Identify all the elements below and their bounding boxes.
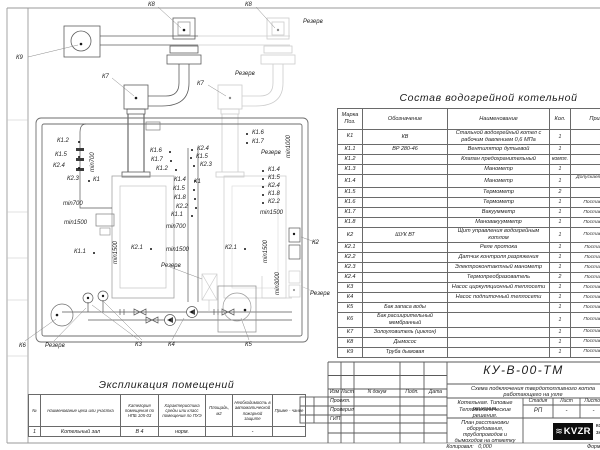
drawing-label: К1.6 bbox=[252, 130, 264, 136]
drawing-label: К3 bbox=[135, 342, 142, 348]
drawing-label: Резерв bbox=[235, 71, 255, 77]
table-cell bbox=[363, 293, 448, 303]
table-cell: Постав. по соглас. bbox=[571, 218, 600, 228]
plan-boilers bbox=[112, 176, 286, 298]
format-label: Формат bbox=[587, 445, 600, 450]
table-cell: Постав. с ШУК ВТ bbox=[571, 243, 600, 253]
table-cell: 1 bbox=[550, 303, 571, 313]
table-cell bbox=[363, 208, 448, 218]
table-cell: Манометр bbox=[448, 174, 550, 187]
table-cell bbox=[448, 327, 550, 337]
table-cell: Постав. по соглас. bbox=[571, 208, 600, 218]
drawing-label: К1.5 bbox=[268, 175, 280, 181]
drawing-label: Резерв bbox=[161, 263, 181, 269]
table-cell bbox=[571, 188, 600, 198]
table-cell bbox=[571, 130, 600, 145]
table-row: К6Бак расширительный мембранный1Постав. … bbox=[338, 313, 600, 328]
table-cell: Электроконтактный манометр bbox=[448, 263, 550, 273]
drawing-label: К1 bbox=[194, 179, 201, 185]
table-cell: Постав. по соглас. bbox=[571, 327, 600, 337]
sheet-subtitle: Схема подключения твердотопливного котла… bbox=[452, 386, 600, 399]
drawing-label: К2.4 bbox=[197, 146, 209, 152]
table-cell: К7 bbox=[338, 327, 363, 337]
table-cell: Постав. по соглас. bbox=[571, 198, 600, 208]
sig-row-checked: Проверил bbox=[330, 408, 390, 414]
table-cell bbox=[273, 427, 306, 437]
table-cell bbox=[363, 164, 448, 174]
table-cell: Постав. по соглас. bbox=[571, 303, 600, 313]
table-cell: Клапан предохранительный bbox=[448, 154, 550, 164]
company-name-line-1: КОТЕЛЬНЫЙ bbox=[596, 424, 600, 428]
table-cell: К1.6 bbox=[338, 198, 363, 208]
table-cell: 1 bbox=[550, 218, 571, 228]
table-cell: К2 bbox=[338, 228, 363, 243]
drawing-label: К7 bbox=[102, 74, 109, 80]
table-cell: К1 bbox=[338, 130, 363, 145]
table-row: 1Котельный залВ 4норм.- bbox=[29, 427, 306, 437]
table-cell: ВР 280-46 bbox=[363, 144, 448, 154]
drawing-label: min1500 bbox=[113, 241, 119, 264]
table-cell: К1.1 bbox=[338, 144, 363, 154]
table-cell: 1 bbox=[550, 228, 571, 243]
drawing-label: Резерв bbox=[303, 19, 323, 25]
table-cell: Допускается замена поз. К2.3 bbox=[571, 174, 600, 187]
rooms-table-title: Экспликация помещений bbox=[28, 379, 305, 391]
table-cell bbox=[363, 198, 448, 208]
sig-header-list: Лист bbox=[341, 390, 354, 396]
table-cell: 1 bbox=[550, 243, 571, 253]
drawing-label: К5 bbox=[245, 342, 252, 348]
col-header: Характеристика среды или класс помещения… bbox=[159, 395, 206, 427]
table-cell bbox=[363, 243, 448, 253]
table-cell bbox=[206, 427, 233, 437]
table-cell: Бак расширительный мембранный bbox=[363, 313, 448, 328]
table-cell: Стальной водогрейный котел с рабочим дав… bbox=[448, 130, 550, 145]
sheets-label: Листов bbox=[580, 399, 600, 405]
table-cell: К1.2 bbox=[338, 154, 363, 164]
table-cell: Датчик контроля разряжения bbox=[448, 253, 550, 263]
table-cell bbox=[363, 188, 448, 198]
table-cell: К4 bbox=[338, 293, 363, 303]
table-cell: К1.4 bbox=[338, 174, 363, 187]
col-header: Наименование bbox=[448, 109, 550, 130]
table-row: К1.3Манометр1 bbox=[338, 164, 600, 174]
drawing-label: min1500 bbox=[166, 247, 189, 253]
table-cell bbox=[448, 347, 550, 357]
drawing-label: К1.1 bbox=[171, 212, 183, 218]
table-cell: ШУК ВТ bbox=[363, 228, 448, 243]
drawing-label: Резерв bbox=[261, 150, 281, 156]
table-cell: К8 bbox=[338, 337, 363, 347]
table-cell: 1 bbox=[550, 130, 571, 145]
table-cell: Манометр bbox=[448, 164, 550, 174]
table-cell: К5 bbox=[338, 303, 363, 313]
table-cell: Постав. по соглас. bbox=[571, 283, 600, 293]
drawing-label: К2.1 bbox=[225, 245, 237, 251]
elevation-view bbox=[64, 18, 201, 177]
table-cell: 1 bbox=[550, 293, 571, 303]
col-header: Необходимость в автоматической пожарной … bbox=[233, 395, 273, 427]
drawing-label: К1.5 bbox=[173, 186, 185, 192]
table-cell: 1 bbox=[550, 263, 571, 273]
table-cell: Щит управления водогрейным котлом bbox=[448, 228, 550, 243]
drawing-label: К2.3 bbox=[67, 176, 79, 182]
copied-label: Копировал: bbox=[425, 445, 495, 450]
table-cell: КВ bbox=[363, 130, 448, 145]
table-cell: Термопреобразователь bbox=[448, 273, 550, 283]
col-header: Примечание bbox=[571, 109, 600, 130]
table-row: К2.2Датчик контроля разряжения1Постав. с… bbox=[338, 253, 600, 263]
kvzr-logo: ≋ KVZR bbox=[553, 423, 593, 441]
table-cell: Мановакуумметр bbox=[448, 218, 550, 228]
drawing-label: К6 bbox=[19, 343, 26, 349]
table-cell: 1 bbox=[550, 327, 571, 337]
drawing-label: К1.8 bbox=[268, 191, 280, 197]
table-cell bbox=[363, 283, 448, 293]
table-row: К1КВСтальной водогрейный котел с рабочим… bbox=[338, 130, 600, 145]
sig-header-izm: Изм bbox=[328, 390, 341, 396]
drawing-label: К1.7 bbox=[151, 157, 163, 163]
drawing-label: К1.5 bbox=[55, 152, 67, 158]
drawing-label: К1.7 bbox=[252, 139, 264, 145]
col-header: № bbox=[29, 395, 41, 427]
drawing-label: min700 bbox=[90, 152, 96, 172]
drawing-label: К4 bbox=[168, 342, 175, 348]
table-row: К1.5Термометр2 bbox=[338, 188, 600, 198]
drawing-label: Резерв bbox=[310, 291, 330, 297]
drawing-label: К2.2 bbox=[268, 199, 280, 205]
col-header: Приме - чание bbox=[273, 395, 306, 427]
table-cell: Постав. по соглас. bbox=[571, 347, 600, 357]
table-cell: Насос циркуляционный теплосети bbox=[448, 283, 550, 293]
table-cell bbox=[363, 218, 448, 228]
col-header: Наименование цеха или участка bbox=[41, 395, 121, 427]
table-cell bbox=[448, 337, 550, 347]
table-row: К3Насос циркуляционный теплосети1Постав.… bbox=[338, 283, 600, 293]
sheets-value: - bbox=[580, 408, 600, 415]
components-header-row: Марка Поз. Обозначение Наименование Кол.… bbox=[338, 109, 600, 130]
drawing-label: К1 bbox=[93, 177, 100, 183]
components-table: Состав водогрейной котельной Марка Поз. … bbox=[337, 92, 600, 358]
table-cell: К1.5 bbox=[338, 188, 363, 198]
table-cell bbox=[363, 253, 448, 263]
rooms-table: Экспликация помещений № Наименование цех… bbox=[28, 379, 305, 437]
table-cell: 1 bbox=[550, 208, 571, 218]
sig-header-podp: Подп. bbox=[400, 390, 424, 396]
table-cell: К3 bbox=[338, 283, 363, 293]
drawing-label: К1.4 bbox=[268, 167, 280, 173]
table-cell: Реле протока bbox=[448, 243, 550, 253]
table-cell bbox=[448, 313, 550, 328]
table-cell bbox=[363, 263, 448, 273]
drawing-label: К1.5 bbox=[196, 154, 208, 160]
drawing-label: min1500 bbox=[64, 220, 87, 226]
table-cell: Котельный зал bbox=[41, 427, 121, 437]
table-cell: 1 bbox=[550, 198, 571, 208]
table-cell: Постав. с ШУК ВТ bbox=[571, 253, 600, 263]
drawing-label: К1.8 bbox=[174, 195, 186, 201]
table-cell: Постав. по соглас. bbox=[571, 228, 600, 243]
table-row: К1.4Манометр1Допускается замена поз. К2.… bbox=[338, 174, 600, 187]
table-cell: - bbox=[233, 427, 273, 437]
drawing-label: К2.4 bbox=[53, 163, 65, 169]
table-cell bbox=[571, 164, 600, 174]
table-cell: Золоуловитель (циклон) bbox=[363, 327, 448, 337]
table-cell: Постав. с ШУК ВТ bbox=[571, 273, 600, 283]
project-line-2: Тепломеханические решения. bbox=[449, 407, 521, 420]
sig-header-data: Дата bbox=[424, 390, 447, 396]
rooms-header-row: № Наименование цеха или участка Категори… bbox=[29, 395, 306, 427]
sig-header-ndokum: N докум bbox=[354, 390, 400, 396]
table-row: К1.7Вакуумметр1Постав. по соглас. bbox=[338, 208, 600, 218]
table-cell: Вакуумметр bbox=[448, 208, 550, 218]
table-cell: К2.1 bbox=[338, 243, 363, 253]
table-cell: Насос подпиточный теплосети bbox=[448, 293, 550, 303]
components-tbody: К1КВСтальной водогрейный котел с рабочим… bbox=[338, 130, 600, 358]
table-cell: 1 bbox=[550, 144, 571, 154]
table-cell bbox=[448, 303, 550, 313]
table-cell: 1 bbox=[550, 283, 571, 293]
table-cell: 1 bbox=[29, 427, 41, 437]
table-cell: норм. bbox=[159, 427, 206, 437]
doc-number: КУ-В-00-ТМ bbox=[447, 364, 600, 378]
table-row: К4Насос подпиточный теплосети1Постав. по… bbox=[338, 293, 600, 303]
table-cell: 1 bbox=[550, 313, 571, 328]
logo-text: KVZR bbox=[564, 427, 591, 437]
drawing-label: min3000 bbox=[275, 272, 281, 295]
table-cell: Бак запаса воды bbox=[363, 303, 448, 313]
drawing-label: Резерв bbox=[45, 343, 65, 349]
drawing-label: К7 bbox=[197, 81, 204, 87]
table-row: К2ШУК ВТЩит управления водогрейным котло… bbox=[338, 228, 600, 243]
sheet-label: Лист bbox=[553, 399, 580, 405]
table-cell: Постав. по соглас. bbox=[571, 313, 600, 328]
table-cell: К2.2 bbox=[338, 253, 363, 263]
drawing-label: К1.6 bbox=[150, 148, 162, 154]
drawing-label: К8 bbox=[245, 2, 252, 8]
table-cell: 2 bbox=[550, 273, 571, 283]
table-row: К2.3Электроконтактный манометр1Постав. с… bbox=[338, 263, 600, 273]
table-cell: К6 bbox=[338, 313, 363, 328]
drawing-label: К2.4 bbox=[268, 183, 280, 189]
table-row: К8Дымосос1Постав. по соглас. bbox=[338, 337, 600, 347]
table-cell: Постав. с ШУК ВТ bbox=[571, 263, 600, 273]
table-cell: К1.8 bbox=[338, 218, 363, 228]
col-header: Обозначение bbox=[363, 109, 448, 130]
table-row: К1.1ВР 280-46Вентилятор дутьевой1 bbox=[338, 144, 600, 154]
drawing-label: min1500 bbox=[263, 240, 269, 263]
table-cell: 1 bbox=[550, 337, 571, 347]
components-table-title: Состав водогрейной котельной bbox=[337, 92, 600, 104]
drawing-sheet: К9К8К8К7К7РезервРезервК1.2К1.5К2.4К2.3К1… bbox=[0, 0, 600, 450]
table-row: К9Труба дымовая1Постав. по соглас. bbox=[338, 347, 600, 357]
table-cell bbox=[571, 154, 600, 164]
table-cell: Постав. по соглас. bbox=[571, 293, 600, 303]
table-cell: 2 bbox=[550, 188, 571, 198]
coil-icon: ≋ bbox=[555, 427, 563, 436]
table-cell: Термометр bbox=[448, 188, 550, 198]
table-cell: К2.4 bbox=[338, 273, 363, 283]
table-cell: Дымосос bbox=[363, 337, 448, 347]
table-cell: В 4 bbox=[121, 427, 159, 437]
drawing-label: К9 bbox=[16, 55, 23, 61]
table-row: К2.4Термопреобразователь2Постав. с ШУК В… bbox=[338, 273, 600, 283]
table-cell: Термометр bbox=[448, 198, 550, 208]
equipment-dots bbox=[56, 29, 295, 321]
drawing-label: min1500 bbox=[260, 210, 283, 216]
table-row: К1.2Клапан предохранительныйкомпл. bbox=[338, 154, 600, 164]
sig-row-gip: ГИП bbox=[330, 417, 390, 423]
stage-label: Стадия bbox=[523, 399, 553, 405]
table-row: К7Золоуловитель (циклон)1Постав. по согл… bbox=[338, 327, 600, 337]
table-cell: К2.3 bbox=[338, 263, 363, 273]
rooms-tbody: 1Котельный залВ 4норм.- bbox=[29, 427, 306, 437]
table-cell: Вентилятор дутьевой bbox=[448, 144, 550, 154]
table-cell bbox=[571, 144, 600, 154]
stage-value: РП bbox=[523, 408, 553, 415]
drawing-label: К2.2 bbox=[176, 204, 188, 210]
drawing-label: К2.1 bbox=[131, 245, 143, 251]
table-cell bbox=[363, 154, 448, 164]
col-header: Марка Поз. bbox=[338, 109, 363, 130]
table-cell: Труба дымовая bbox=[363, 347, 448, 357]
table-cell: К1.7 bbox=[338, 208, 363, 218]
drawing-label: К2 bbox=[312, 240, 319, 246]
drawing-label: min700 bbox=[63, 201, 83, 207]
table-cell: 1 bbox=[550, 174, 571, 187]
table-cell: К9 bbox=[338, 347, 363, 357]
table-row: К2.1Реле протока1Постав. с ШУК ВТ bbox=[338, 243, 600, 253]
table-cell: К1.3 bbox=[338, 164, 363, 174]
drawing-label: К1.2 bbox=[57, 138, 69, 144]
table-row: К1.8Мановакуумметр1Постав. по соглас. bbox=[338, 218, 600, 228]
drawing-label: К8 bbox=[148, 2, 155, 8]
col-header: Категория помещения по НПБ 105-03 bbox=[121, 395, 159, 427]
table-cell: Постав. по соглас. bbox=[571, 337, 600, 347]
drawing-label: К1.4 bbox=[174, 177, 186, 183]
col-header: Кол. bbox=[550, 109, 571, 130]
sheet-value: - bbox=[553, 408, 580, 415]
table-cell: компл. bbox=[550, 154, 571, 164]
drawing-label: К1.2 bbox=[156, 166, 168, 172]
company-name-line-2: ЗАВОД Р bbox=[596, 431, 600, 435]
table-cell: 1 bbox=[550, 347, 571, 357]
col-header: Площадь, м2 bbox=[206, 395, 233, 427]
table-cell bbox=[363, 174, 448, 187]
table-cell bbox=[363, 273, 448, 283]
drawing-label: К1.1 bbox=[74, 249, 86, 255]
drawing-label: min700 bbox=[166, 224, 186, 230]
table-row: К5Бак запаса воды1Постав. по соглас. bbox=[338, 303, 600, 313]
table-row: К1.6Термометр1Постав. по соглас. bbox=[338, 198, 600, 208]
sig-row-project: Проект. bbox=[330, 399, 390, 405]
table-cell: 1 bbox=[550, 164, 571, 174]
drawing-label: К2.3 bbox=[200, 162, 212, 168]
table-cell: 1 bbox=[550, 253, 571, 263]
drawing-label: min1000 bbox=[286, 135, 292, 158]
